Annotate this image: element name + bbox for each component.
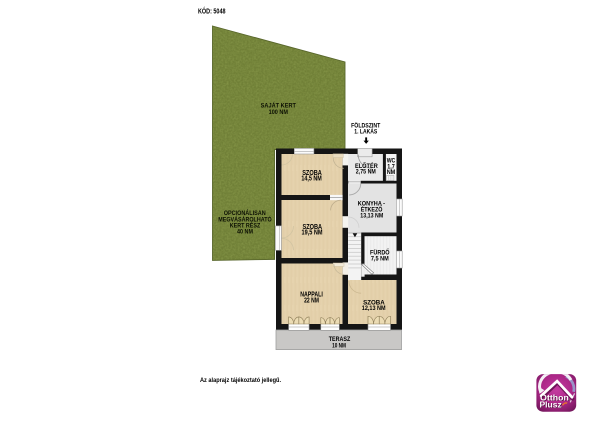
svg-text:19,5 NM: 19,5 NM: [302, 230, 323, 237]
svg-text:13,13 NM: 13,13 NM: [360, 212, 383, 219]
svg-text:KÓD: 5048: KÓD: 5048: [198, 7, 226, 16]
svg-text:10 NM: 10 NM: [332, 343, 346, 350]
svg-text:2,75 NM: 2,75 NM: [356, 169, 376, 176]
svg-text:12,13 NM: 12,13 NM: [362, 305, 386, 312]
svg-text:40 NM: 40 NM: [237, 228, 253, 235]
svg-text:100 NM: 100 NM: [269, 109, 288, 116]
svg-text:7,5 NM: 7,5 NM: [371, 255, 389, 262]
svg-text:Az alaprajz tájékoztató jelleg: Az alaprajz tájékoztató jellegű.: [200, 377, 281, 384]
svg-text:14,5 NM: 14,5 NM: [301, 176, 322, 183]
svg-text:22 NM: 22 NM: [304, 298, 319, 305]
svg-text:1. LAKÁS: 1. LAKÁS: [354, 127, 377, 136]
svg-text:NM: NM: [387, 169, 396, 176]
svg-text:Plusz: Plusz: [539, 400, 561, 410]
